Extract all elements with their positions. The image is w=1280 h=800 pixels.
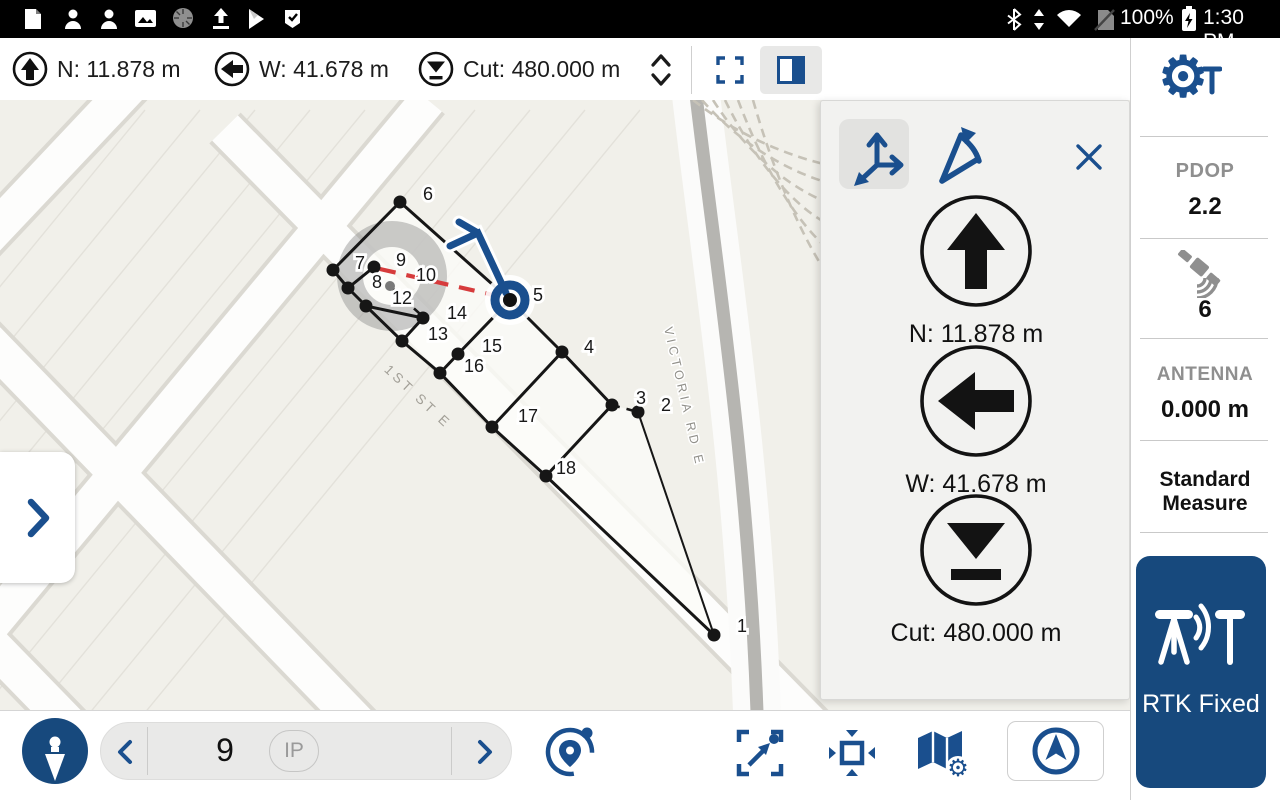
chevron-left-icon <box>115 738 135 766</box>
cut-icon <box>418 51 454 87</box>
play-store-icon <box>246 7 268 36</box>
measurement-header: N: 11.878 m W: 41.678 m Cut: 480.000 m <box>0 38 1130 101</box>
previous-point-button[interactable] <box>115 738 135 766</box>
chevron-right-icon <box>20 492 56 544</box>
nav-mode-axes-button[interactable] <box>839 119 909 189</box>
nav-cut-row: Cut: 480.000 m <box>821 492 1131 648</box>
north-arrow-icon <box>918 193 1034 309</box>
map-point-label[interactable]: 7 <box>355 253 365 273</box>
android-status-bar: 100% 1:30 PM <box>0 0 1280 38</box>
navigate-to-point-panel: N: 11.878 m W: 41.678 m Cut: 480.000 m <box>820 100 1130 700</box>
header-divider <box>691 46 692 94</box>
note-icon <box>22 7 44 36</box>
split-view-icon <box>777 56 805 84</box>
north-arrow-icon <box>12 51 48 87</box>
plumb-bob-icon <box>22 718 88 784</box>
map-point-label[interactable]: 16 <box>464 356 484 376</box>
point-type-badge: IP <box>269 730 319 772</box>
select-nearest-point-button[interactable] <box>542 723 598 779</box>
satellites-value[interactable]: 6 <box>1130 296 1280 324</box>
cut-value: Cut: 480.000 m <box>463 56 620 83</box>
map-point-dot[interactable] <box>708 629 721 642</box>
map-point-label[interactable]: 12 <box>392 288 412 308</box>
nav-north-row: N: 11.878 m <box>821 193 1131 349</box>
contacts-icon <box>98 7 120 36</box>
antenna-value[interactable]: 0.000 m <box>1130 396 1280 424</box>
sidebar-divider <box>1140 136 1268 137</box>
pdop-value[interactable]: 2.2 <box>1130 193 1280 221</box>
wifi-icon <box>1054 7 1084 36</box>
sidebar-divider <box>1140 532 1268 533</box>
compass-icon <box>1028 723 1084 779</box>
map-point-dot[interactable] <box>540 470 553 483</box>
stepper-divider <box>147 727 148 775</box>
gnss-settings-button[interactable]: ⚙ <box>1158 44 1222 110</box>
delta-west-chip[interactable]: W: 41.678 m <box>214 38 389 100</box>
delta-north-value: N: 11.878 m <box>57 56 181 83</box>
map-point-label[interactable]: 6 <box>423 184 433 204</box>
zoom-to-selection-button[interactable] <box>734 727 786 779</box>
map-orientation-button[interactable] <box>1007 721 1104 781</box>
map-settings-button[interactable]: ⚙ <box>913 725 973 781</box>
map-point-dot[interactable] <box>452 348 465 361</box>
map-point-label[interactable]: 3 <box>636 388 646 408</box>
bluetooth-icon <box>1004 7 1024 38</box>
up-down-chevrons-icon <box>647 49 675 91</box>
map-point-label[interactable]: 8 <box>372 272 382 292</box>
sidebar-divider <box>1140 338 1268 339</box>
map-point-label[interactable]: 1 <box>737 616 747 636</box>
parcel-vertex-dot[interactable] <box>434 367 447 380</box>
no-sim-icon <box>1092 7 1118 38</box>
map-point-label[interactable]: 13 <box>428 324 448 344</box>
map-point-label[interactable]: 17 <box>518 406 538 426</box>
next-point-button[interactable] <box>475 738 495 766</box>
battery-percent: 100% <box>1120 6 1178 30</box>
nav-cut-value: Cut: 480.000 m <box>821 619 1131 648</box>
rtk-base-rover-icon <box>1151 600 1251 676</box>
parcel-vertex-dot[interactable] <box>342 282 355 295</box>
svg-text:⚙: ⚙ <box>947 755 969 781</box>
map-point-dot[interactable] <box>486 421 499 434</box>
map-point-label[interactable]: 4 <box>584 337 594 357</box>
battery-icon <box>1180 5 1198 38</box>
app-screen: 100% 1:30 PM N: 11.878 m W: 41.678 m Cut… <box>0 0 1280 800</box>
point-name-value[interactable]: 9 <box>197 732 253 769</box>
delta-west-value: W: 41.678 m <box>259 56 389 83</box>
cut-chip[interactable]: Cut: 480.000 m <box>418 38 620 100</box>
map-settings-icon: ⚙ <box>913 725 973 781</box>
map-point-label[interactable]: 5 <box>533 285 543 305</box>
collapse-values-button[interactable] <box>647 49 675 96</box>
parcel-vertex-dot[interactable] <box>360 300 373 313</box>
chevron-right-icon <box>475 738 495 766</box>
cut-icon <box>918 492 1034 608</box>
tasks-icon <box>282 7 304 36</box>
map-point-label[interactable]: 18 <box>556 458 576 478</box>
map-point-label[interactable]: 9 <box>396 250 406 270</box>
map-point-dot[interactable] <box>394 196 407 209</box>
map-point-dot[interactable] <box>556 346 569 359</box>
favorites-drawer-tab[interactable] <box>0 452 75 583</box>
contacts-icon <box>62 7 84 36</box>
map-point-dot[interactable] <box>606 399 619 412</box>
rtk-status-button[interactable]: RTK Fixed <box>1136 556 1266 788</box>
point-name-stepper: 9 IP <box>100 722 512 780</box>
delta-north-chip[interactable]: N: 11.878 m <box>12 38 181 100</box>
rtk-status-text: RTK Fixed <box>1142 690 1260 719</box>
axes-icon <box>841 121 907 187</box>
sidebar-divider <box>1140 238 1268 239</box>
west-arrow-icon <box>214 51 250 87</box>
measure-method[interactable]: Standard Measure <box>1130 468 1280 516</box>
split-view-toggle[interactable] <box>760 46 822 94</box>
map-point-label[interactable]: 10 <box>416 265 436 285</box>
gallery-icon <box>134 7 158 36</box>
sidebar-divider <box>1140 440 1268 441</box>
rover-pole-icon <box>1202 64 1222 96</box>
parcel-vertex-dot[interactable] <box>396 335 409 348</box>
parcel-vertex-dot[interactable] <box>327 264 340 277</box>
fullscreen-button[interactable] <box>713 53 747 92</box>
rover-position-dot[interactable] <box>503 293 517 307</box>
zoom-extents-icon <box>734 727 786 779</box>
antenna-label: ANTENNA <box>1130 364 1280 386</box>
map-point-label[interactable]: 14 <box>447 303 467 323</box>
disc-icon <box>172 7 196 36</box>
fullscreen-icon <box>713 53 747 87</box>
stepper-divider <box>451 727 452 775</box>
west-arrow-icon <box>918 343 1034 459</box>
nav-mode-bearing-button[interactable] <box>929 123 995 187</box>
close-icon[interactable] <box>1073 141 1105 173</box>
upload-icon <box>210 7 232 36</box>
nav-west-row: W: 41.678 m <box>821 343 1131 499</box>
measure-point-button[interactable] <box>22 718 88 784</box>
bearing-icon <box>930 123 994 187</box>
center-map-button[interactable] <box>826 727 878 779</box>
map-point-label[interactable]: 2 <box>661 395 671 415</box>
pdop-label: PDOP <box>1130 160 1280 183</box>
center-fit-icon <box>826 727 878 779</box>
map-point-label[interactable]: 15 <box>482 336 502 356</box>
map-point-dot[interactable] <box>417 312 430 325</box>
updown-arrows-icon <box>1032 9 1046 36</box>
location-target-icon <box>542 723 598 779</box>
